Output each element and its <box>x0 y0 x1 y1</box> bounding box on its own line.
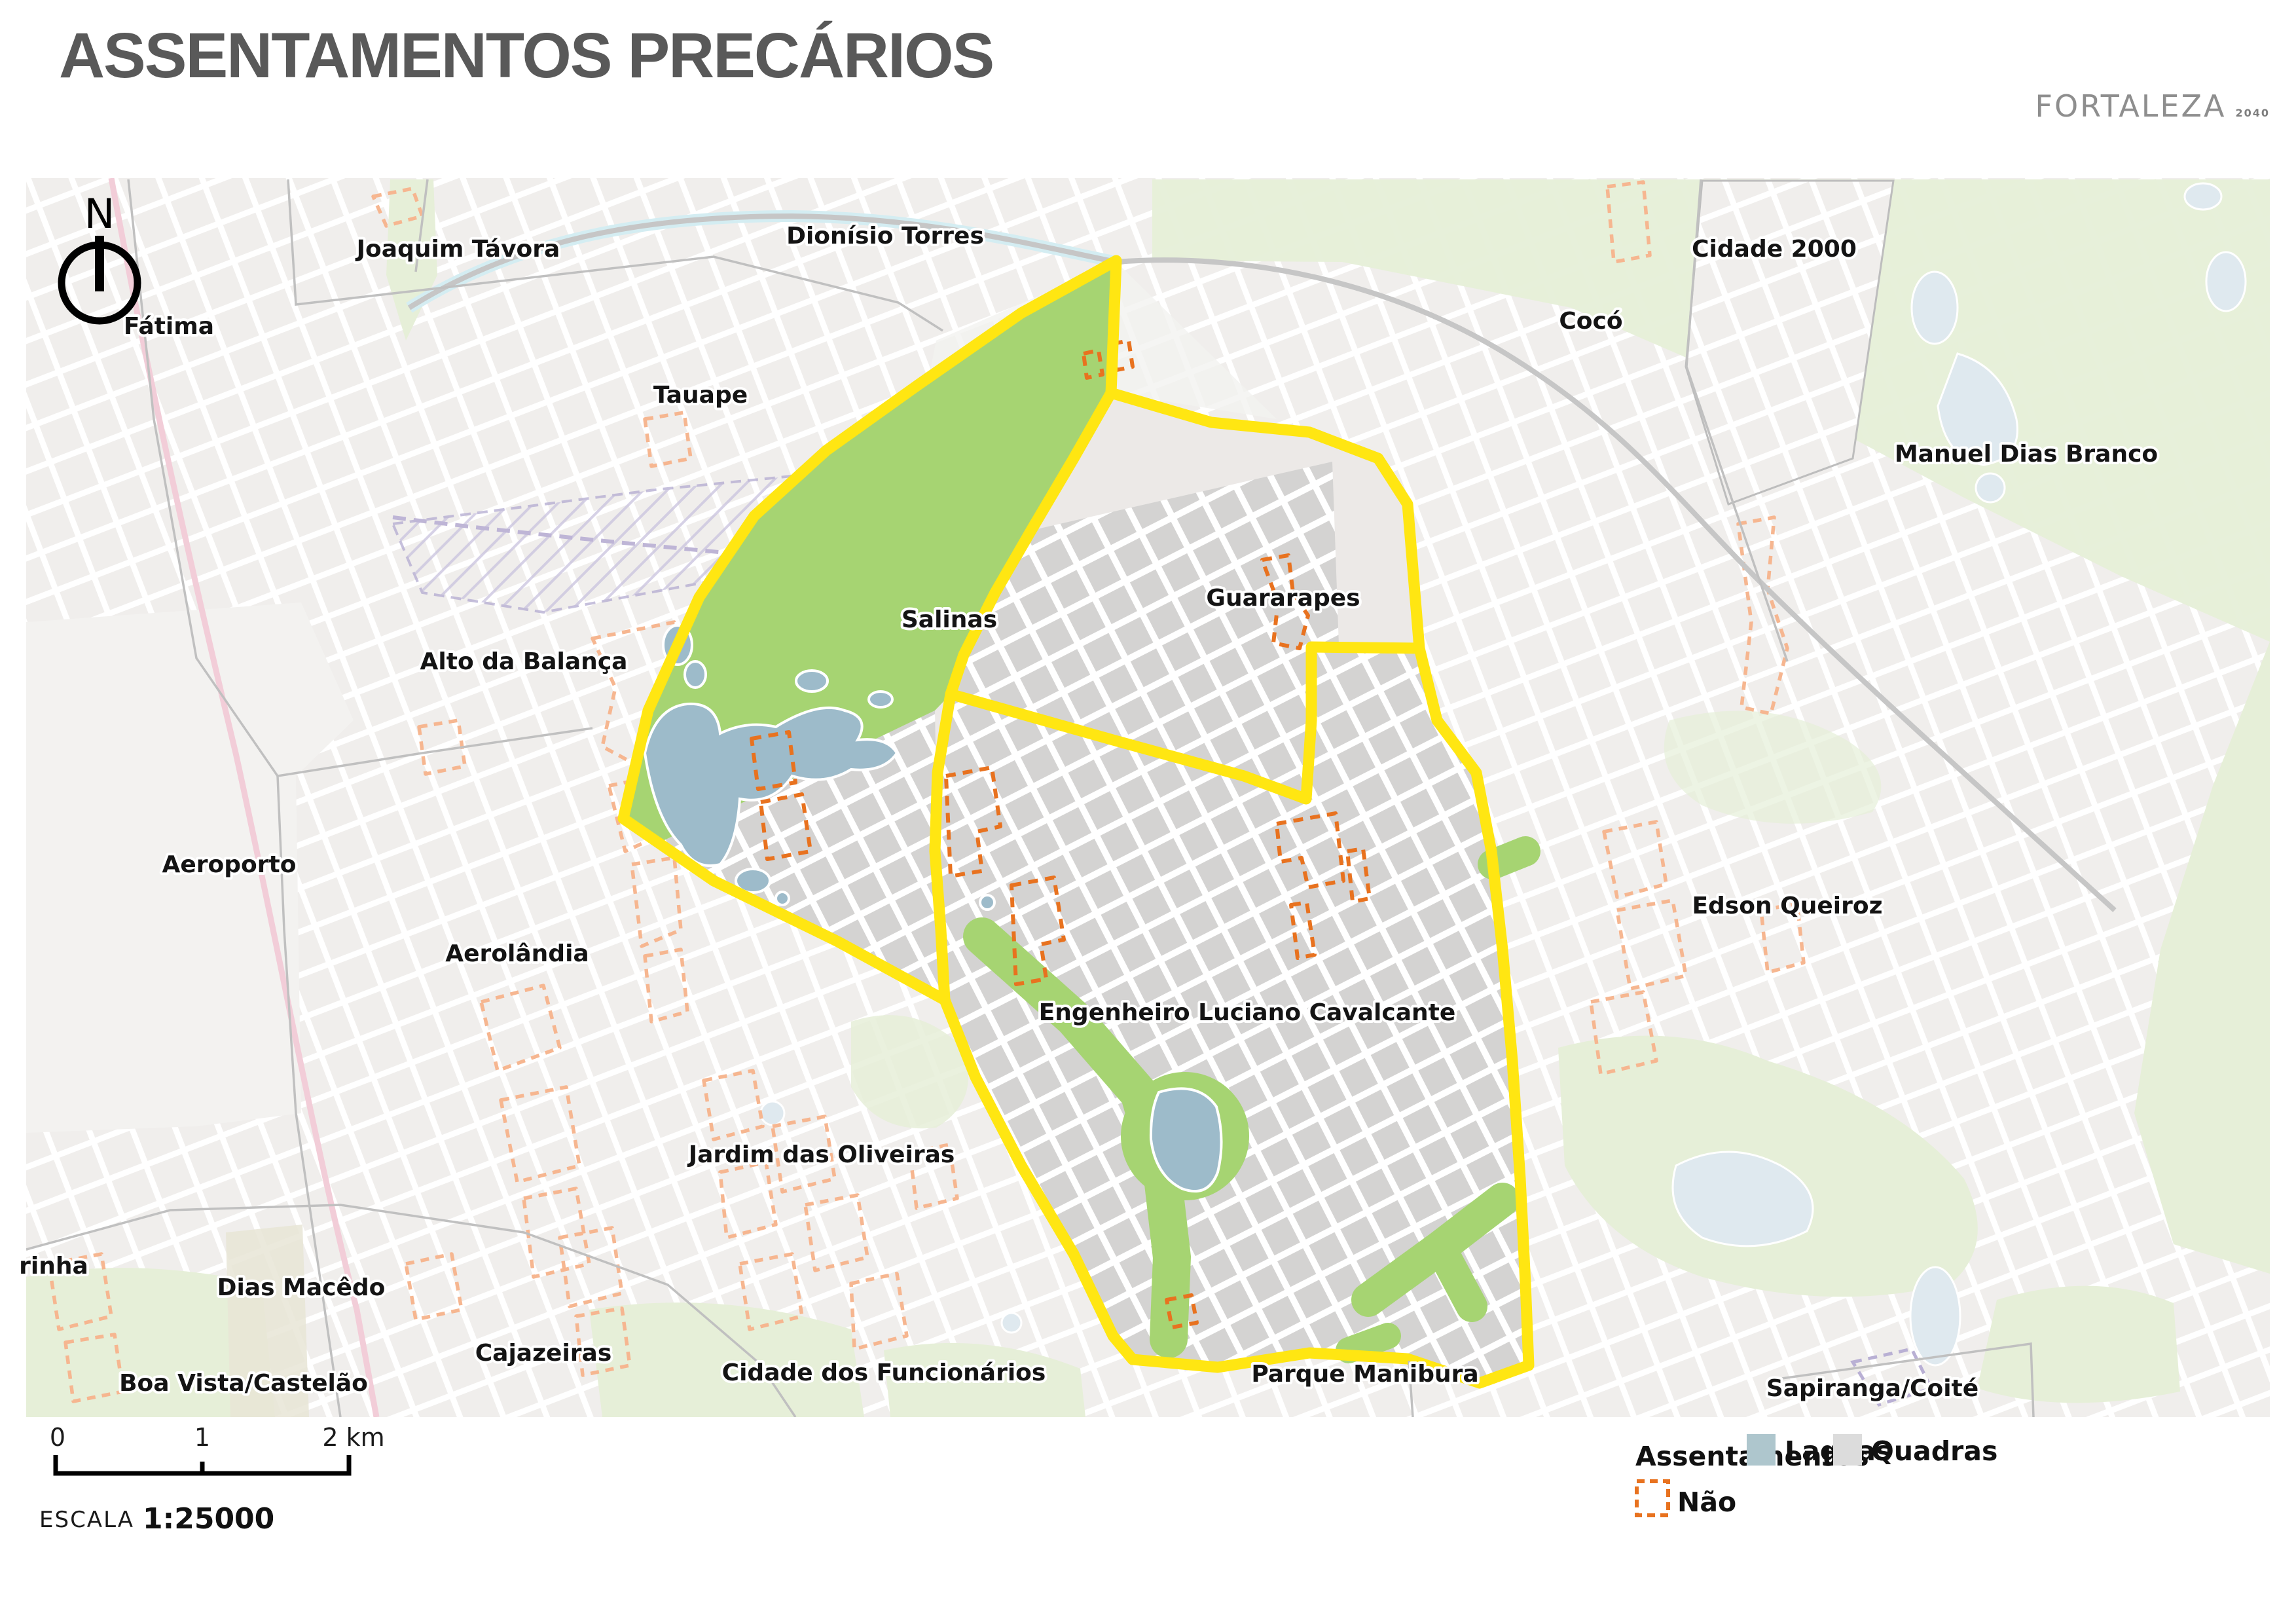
map-label-sapiranga-coite: Sapiranga/Coité <box>1766 1375 1978 1402</box>
legend-swatch-lagoas <box>1747 1434 1776 1466</box>
scalebar-tick-1: 1 <box>194 1423 210 1452</box>
map-label-edson-queiroz: Edson Queiroz <box>1692 893 1882 919</box>
map-label-salinas: Salinas <box>902 606 997 633</box>
map-label-joaquim-tavora: Joaquim Távora <box>355 236 560 263</box>
legend-swatch-nao <box>1637 1481 1668 1515</box>
map-label-cidade-2000: Cidade 2000 <box>1692 236 1857 263</box>
legend-quadras-label: Quadras <box>1871 1435 1997 1467</box>
scalebar-line <box>56 1455 349 1473</box>
map-label-jardim-das-oliveiras: Jardim das Oliveiras <box>687 1141 955 1168</box>
escala-value: 1:25000 <box>143 1502 274 1536</box>
map-label-fatima: Fátima <box>124 313 214 340</box>
legend-swatch-quadras <box>1833 1434 1862 1466</box>
brand: FORTALEZA2040 <box>2035 88 2270 124</box>
map-label-dionisio-torres: Dionísio Torres <box>786 223 984 249</box>
map-label-coco: Cocó <box>1559 308 1622 335</box>
map-label-guararapes: Guararapes <box>1206 585 1360 612</box>
map-label-dias-macedo: Dias Macêdo <box>217 1274 386 1301</box>
map-label-cajazeiras: Cajazeiras <box>475 1340 612 1367</box>
map-label-serrinha-cut: rinha <box>19 1253 88 1280</box>
map-label-tauape: Tauape <box>653 382 748 409</box>
page-title: ASSENTAMENTOS PRECÁRIOS <box>59 20 993 91</box>
map-label-cidade-dos-funcionarios: Cidade dos Funcionários <box>722 1359 1046 1386</box>
brand-year: 2040 <box>2235 107 2270 119</box>
map-canvas <box>26 178 2270 1417</box>
map-label-aeroporto: Aeroporto <box>162 851 297 878</box>
legend: Assentamentos Lagoas Quadras Não <box>1635 1434 1997 1518</box>
legend-nao-label: Não <box>1677 1486 1736 1518</box>
map-label-aerolandia: Aerolândia <box>445 940 589 967</box>
map-label-alto-da-balanca: Alto da Balança <box>420 648 628 675</box>
map-label-parque-manibura: Parque Manibura <box>1251 1361 1478 1388</box>
map-report-page: ASSENTAMENTOS PRECÁRIOS FORTALEZA2040 <box>0 0 2296 1624</box>
scalebar: 0 1 2 km ESCALA 1:25000 <box>39 1423 385 1536</box>
scalebar-tick-2: 2 km <box>322 1423 384 1452</box>
escala-label: ESCALA <box>39 1507 134 1533</box>
scalebar-tick-0: 0 <box>50 1423 65 1452</box>
map-label-manuel-dias-branco: Manuel Dias Branco <box>1895 441 2158 468</box>
compass-north-label: N <box>84 190 115 238</box>
map-label-engenheiro-luciano-cavalcante: Engenheiro Luciano Cavalcante <box>1039 999 1456 1026</box>
map-label-boa-vista-castelao: Boa Vista/Castelão <box>119 1370 368 1397</box>
brand-city: FORTALEZA <box>2035 88 2227 124</box>
